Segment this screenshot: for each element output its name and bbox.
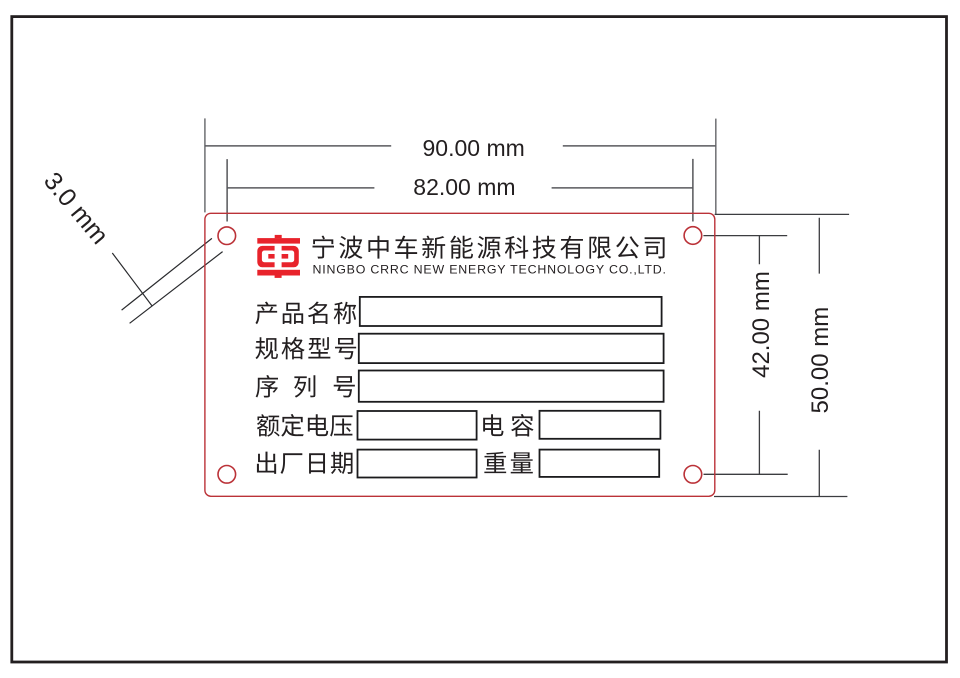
svg-text:50.00 mm: 50.00 mm: [807, 307, 834, 414]
svg-text:NINGBO CRRC NEW ENERGY TECHNOL: NINGBO CRRC NEW ENERGY TECHNOLOGY CO.,LT…: [313, 263, 667, 277]
svg-text:90.00 mm: 90.00 mm: [423, 135, 525, 161]
svg-text:82.00 mm: 82.00 mm: [413, 174, 515, 200]
svg-text:42.00 mm: 42.00 mm: [748, 271, 775, 378]
